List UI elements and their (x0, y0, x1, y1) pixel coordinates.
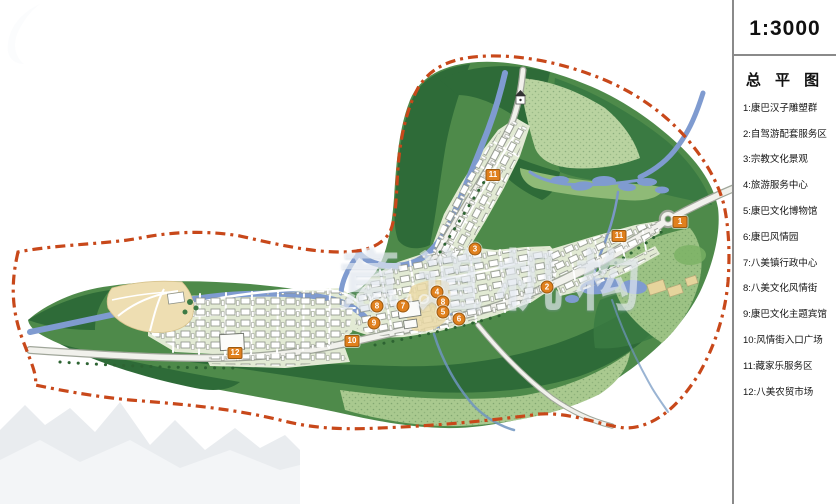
location-marker: 11 (486, 169, 501, 181)
legend-item: 4:旅游服务中心 (743, 171, 836, 197)
legend-title: 总 平 图 (734, 69, 836, 90)
location-marker: 5 (437, 306, 450, 319)
location-marker: 1 (673, 216, 688, 228)
legend-item: 8:八美文化风情街 (743, 275, 836, 301)
legend-item: 7:八美镇行政中心 (743, 249, 836, 275)
location-marker: 8 (371, 300, 384, 313)
location-marker: 9 (368, 317, 381, 330)
legend-item: 2:自驾游配套服务区 (743, 120, 836, 146)
legend-item: 1:康巴汉子雕塑群 (743, 94, 836, 120)
mountain-sketch (0, 402, 300, 504)
location-marker: 2 (541, 281, 554, 294)
legend-item: 10:风情街入口广场 (743, 326, 836, 352)
legend-item: 6:康巴风情园 (743, 223, 836, 249)
panel-divider (734, 54, 836, 56)
location-marker: 7 (397, 300, 410, 313)
location-marker: 3 (469, 243, 482, 256)
legend-list: 1:康巴汉子雕塑群2:自驾游配套服务区3:宗教文化景观4:旅游服务中心5:康巴文… (734, 94, 836, 404)
plan-sheet: 意道机构 YIDAO 111234856789101112 1:3000 总 平… (0, 0, 836, 504)
legend-item: 11:藏家乐服务区 (743, 352, 836, 378)
location-marker: 6 (453, 313, 466, 326)
legend-item: 5:康巴文化博物馆 (743, 197, 836, 223)
location-marker: 10 (345, 335, 360, 347)
legend-item: 9:康巴文化主题宾馆 (743, 300, 836, 326)
legend-item: 12:八美农贸市场 (743, 378, 836, 404)
legend-item: 3:宗教文化景观 (743, 146, 836, 172)
legend-panel: 1:3000 总 平 图 1:康巴汉子雕塑群2:自驾游配套服务区3:宗教文化景观… (732, 0, 836, 504)
plan-drawing (0, 0, 740, 504)
scale-label: 1:3000 (734, 0, 836, 54)
location-marker: 12 (228, 347, 243, 359)
location-marker: 11 (612, 230, 627, 242)
master-plan-map: 意道机构 YIDAO 111234856789101112 (0, 0, 740, 504)
